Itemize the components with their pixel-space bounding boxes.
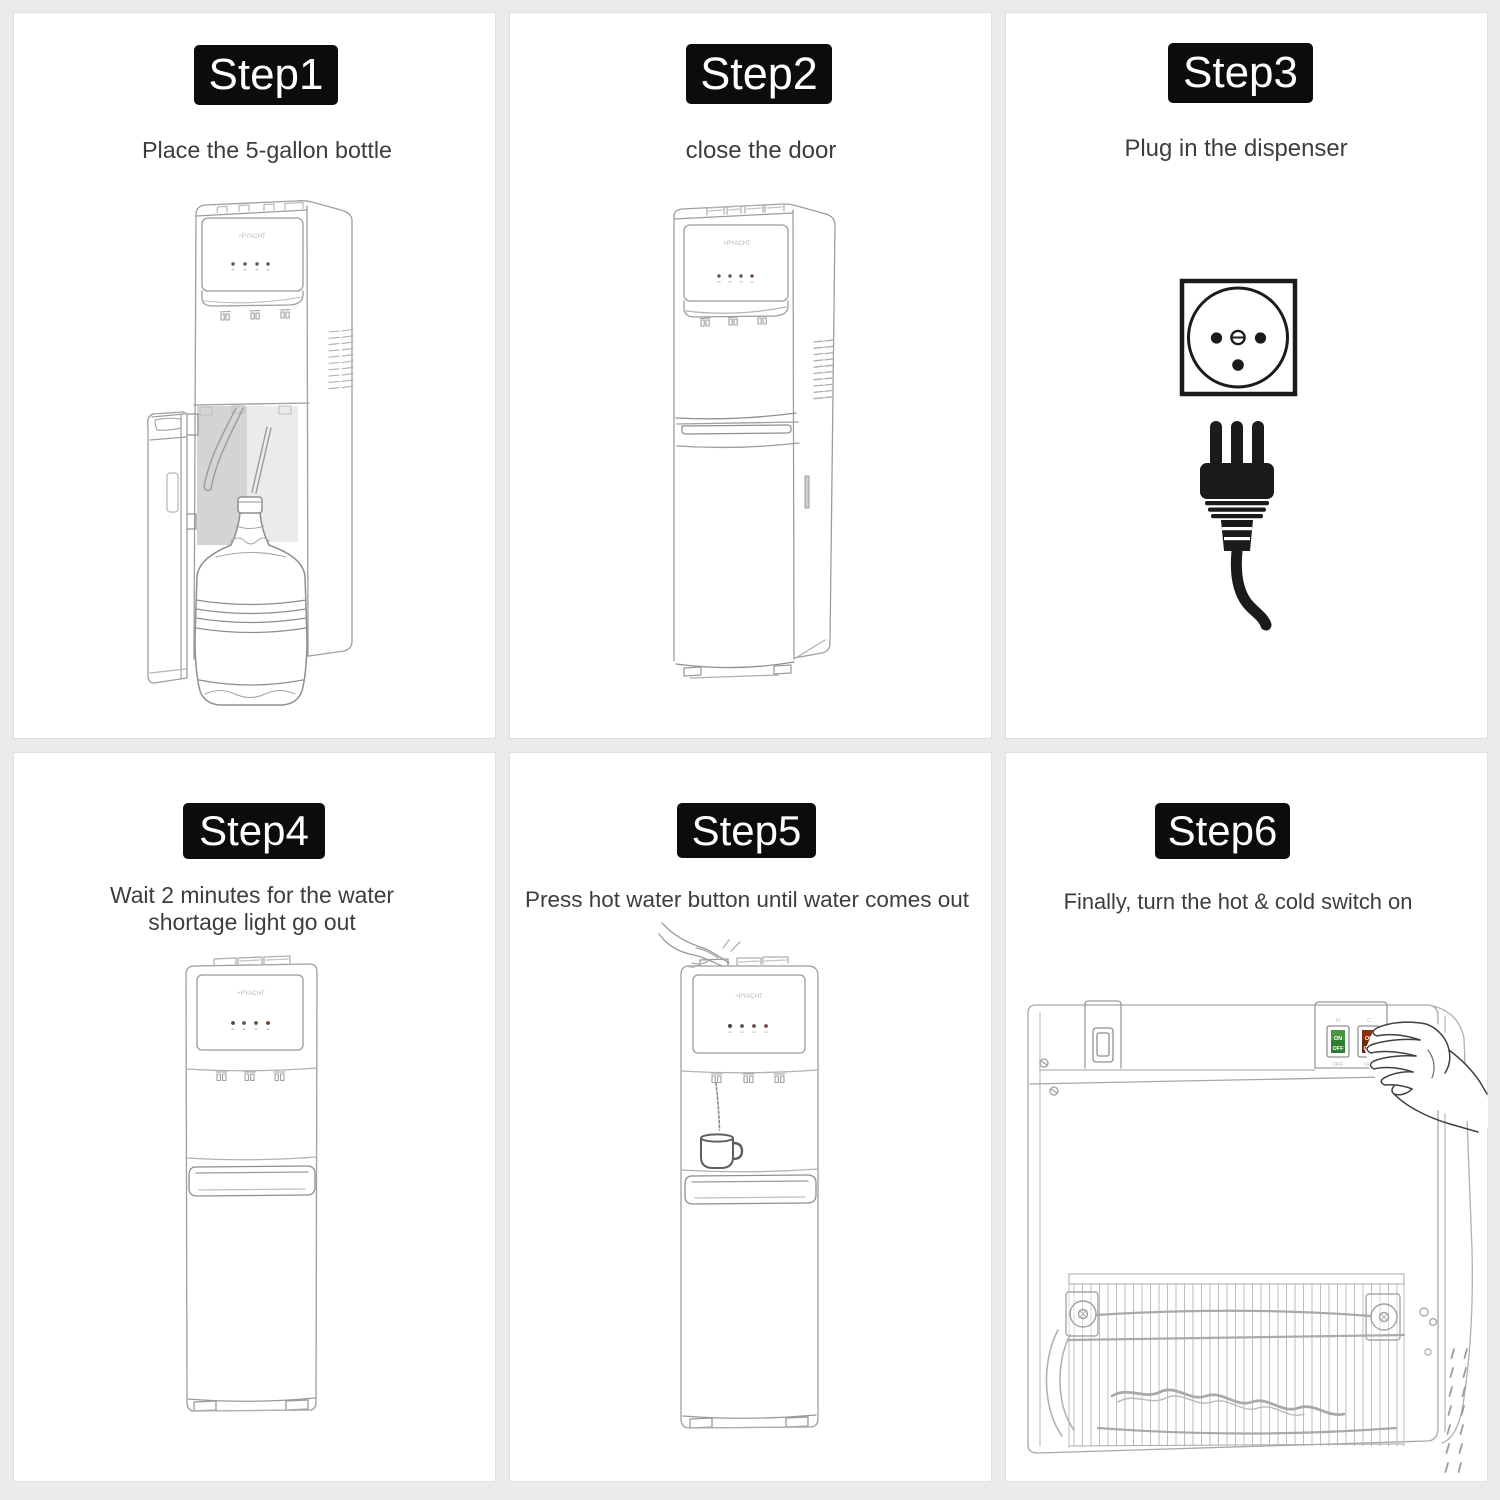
svg-text:+PYACHT: +PYACHT	[723, 241, 751, 247]
svg-text:H: H	[1336, 1018, 1340, 1024]
svg-text:+PYACHT: +PYACHT	[735, 994, 763, 1000]
svg-text:+PYACHT: +PYACHT	[238, 234, 266, 240]
svg-text:OFF: OFF	[1333, 1046, 1345, 1052]
svg-text:+PYACHT: +PYACHT	[237, 991, 265, 997]
svg-text:OFF: OFF	[1333, 1062, 1343, 1068]
svg-text:ON: ON	[1334, 1036, 1342, 1042]
svg-text:C: C	[1367, 1018, 1371, 1024]
